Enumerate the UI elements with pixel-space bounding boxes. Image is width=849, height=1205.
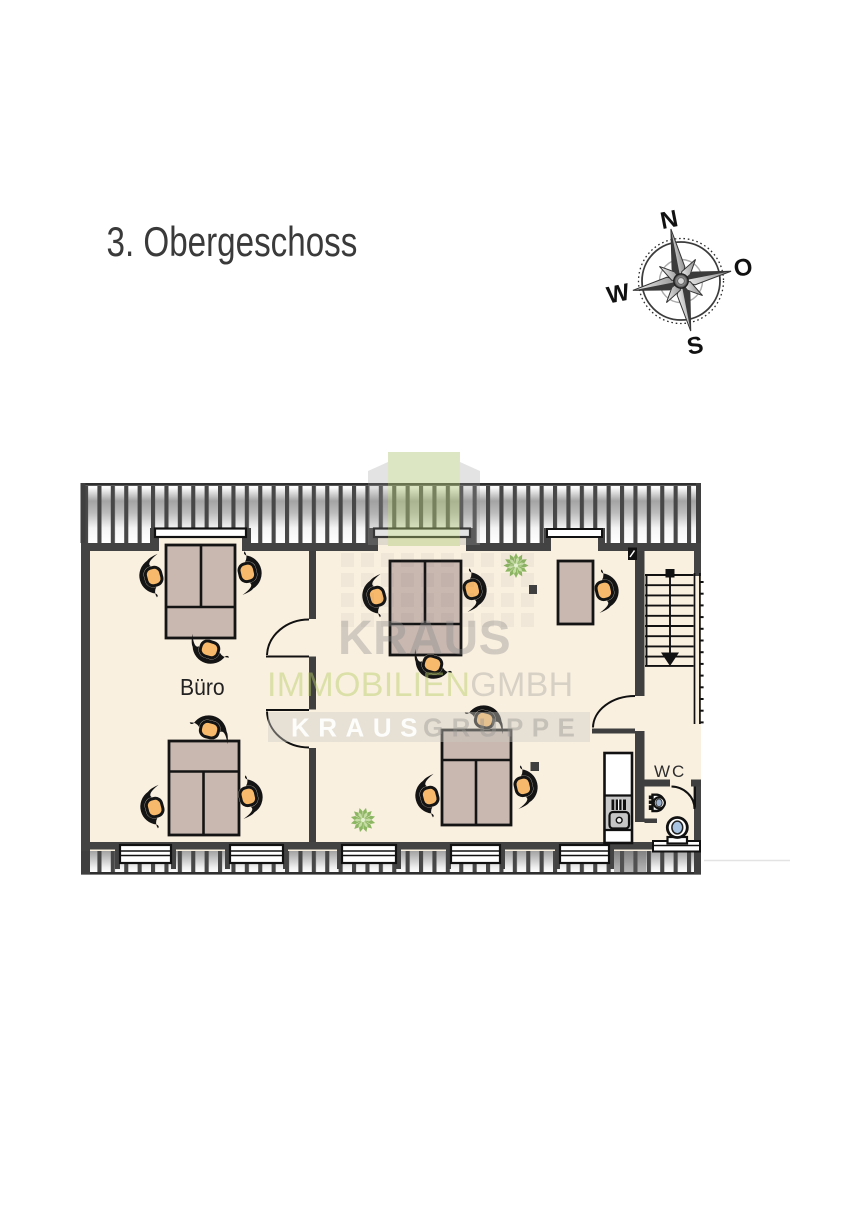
svg-text:IMMOBILIENGMBH: IMMOBILIENGMBH <box>267 666 573 704</box>
svg-text:Büro: Büro <box>180 674 225 700</box>
svg-text:GRUPPE: GRUPPE <box>423 713 583 743</box>
svg-text:WC: WC <box>654 762 686 781</box>
svg-text:KRAUS: KRAUS <box>338 612 511 665</box>
svg-text:3. Obergeschoss: 3. Obergeschoss <box>107 218 358 264</box>
svg-text:KRAUS: KRAUS <box>291 713 426 743</box>
